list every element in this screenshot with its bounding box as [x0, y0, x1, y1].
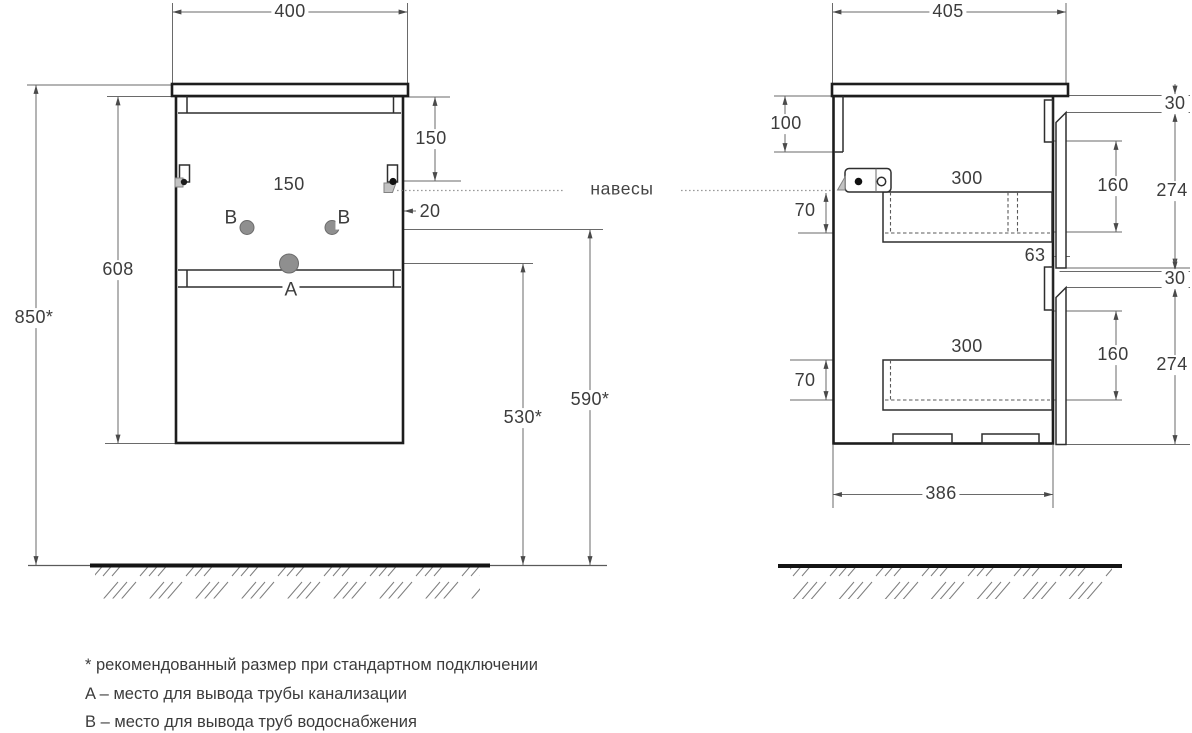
- dim-front-height-lower: 274: [1153, 355, 1190, 375]
- dim-front-height-upper: 274: [1153, 181, 1190, 201]
- dim-drawer-depth-lower: 300: [948, 337, 985, 357]
- cabinet-side-body: [834, 96, 1054, 444]
- drain-hole: [280, 254, 299, 273]
- label-b-left: B: [222, 209, 239, 230]
- label-a: A: [282, 281, 299, 302]
- front-view: [27, 3, 603, 565]
- drawer-front-lower: [1056, 288, 1066, 445]
- dim-drawer-depth-upper: 300: [948, 169, 985, 189]
- dim-width-top: 400: [271, 2, 308, 22]
- hangers-label: навесы: [587, 179, 656, 198]
- dim-hanger-drop-upper: 70: [792, 201, 819, 221]
- dim-hanger-offset: 20: [417, 202, 444, 222]
- dim-cabinet-height: 608: [99, 260, 136, 280]
- dim-top-offset: 150: [412, 129, 449, 149]
- dim-gap-middle: 30: [1162, 269, 1189, 289]
- dim-front-recess-lower: 160: [1094, 345, 1131, 365]
- drawer-front-upper: [1056, 113, 1066, 269]
- dim-drain-height: 530*: [501, 408, 546, 428]
- countertop-front: [172, 84, 408, 96]
- wall-hanger-side-icon: [838, 169, 892, 193]
- dim-back-inset: 100: [767, 114, 804, 134]
- water-supply-hole-left: [240, 221, 254, 235]
- dim-total-height: 850*: [12, 308, 57, 328]
- mid-front-rail: [1045, 267, 1053, 310]
- dim-gap-top: 30: [1162, 94, 1189, 114]
- technical-drawing-page: 400 150 150 20 B B A 608 850* 530* 590* …: [0, 0, 1192, 731]
- dim-hole-spacing: 150: [270, 175, 307, 195]
- floor-hatch-right: [790, 568, 1112, 599]
- dim-supply-height: 590*: [568, 390, 613, 410]
- drawing-canvas: [0, 0, 1192, 731]
- top-front-rail: [1045, 100, 1053, 142]
- floor: [28, 566, 1122, 600]
- label-b-right: B: [335, 209, 352, 230]
- countertop-side: [832, 84, 1068, 96]
- side-view: [774, 3, 1190, 508]
- footnote-a-drain: A – место для вывода трубы канализации: [85, 684, 407, 705]
- dim-hanger-drop-lower: 70: [792, 371, 819, 391]
- floor-hatch-left: [95, 568, 480, 599]
- dim-front-recess-upper: 160: [1094, 176, 1131, 196]
- dim-depth-top: 405: [929, 2, 966, 22]
- footnote-recommended-size: * рекомендованный размер при стандартном…: [85, 655, 538, 676]
- dim-rail-clearance: 63: [1022, 246, 1049, 266]
- footnote-b-supply: B – место для вывода труб водоснабжения: [85, 712, 417, 733]
- dim-bottom-depth: 386: [922, 484, 959, 504]
